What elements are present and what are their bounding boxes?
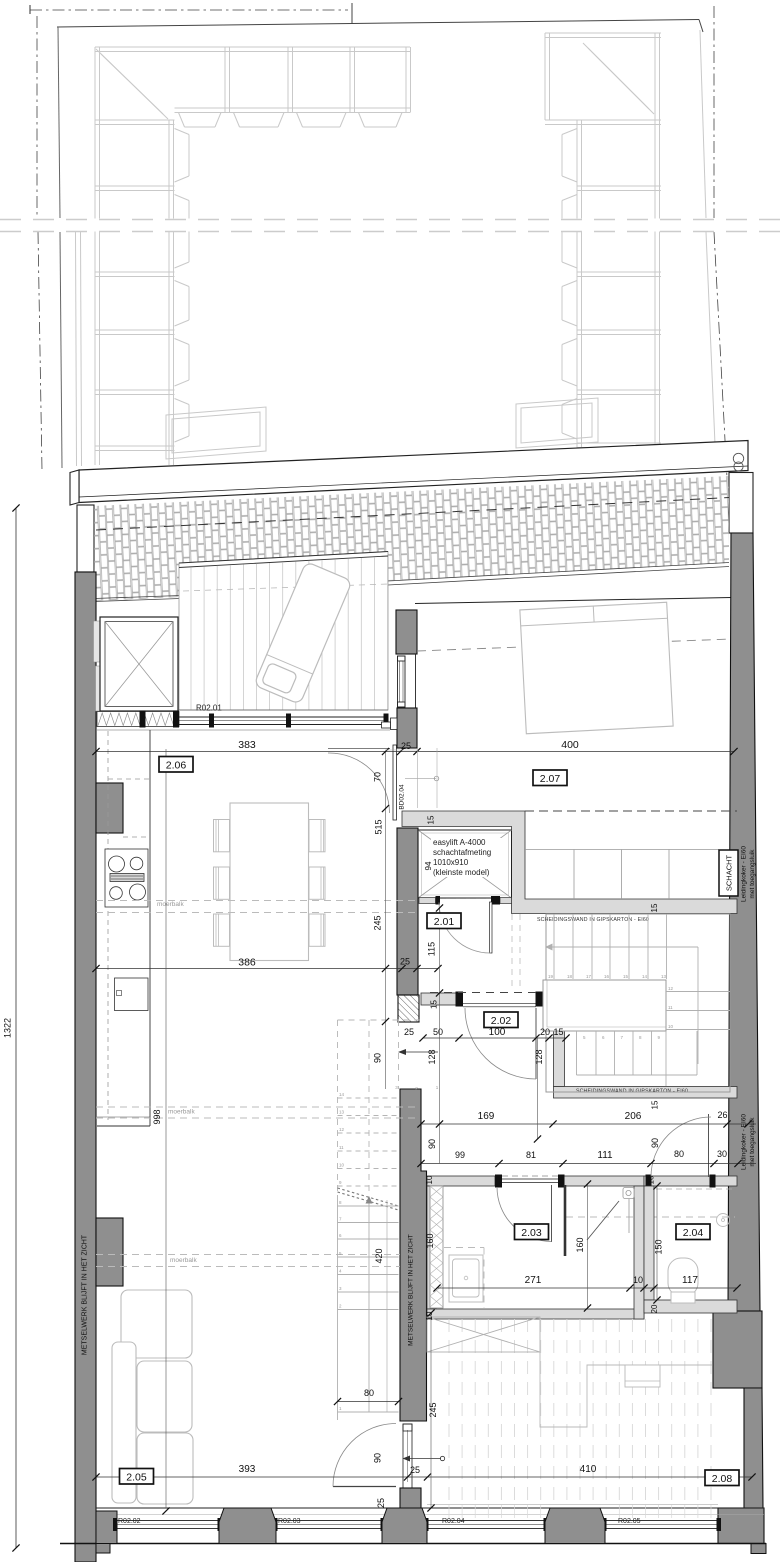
- svg-text:10: 10: [633, 1275, 643, 1285]
- svg-text:206: 206: [625, 1111, 642, 1122]
- svg-text:245: 245: [373, 915, 383, 930]
- svg-text:12: 12: [339, 1127, 345, 1132]
- svg-text:393: 393: [239, 1464, 256, 1475]
- svg-text:70: 70: [373, 772, 383, 782]
- svg-text:420: 420: [374, 1248, 384, 1263]
- svg-text:schachtafmeting: schachtafmeting: [433, 848, 491, 857]
- svg-text:19: 19: [548, 974, 554, 979]
- svg-text:10: 10: [668, 1024, 674, 1029]
- svg-text:25: 25: [400, 957, 410, 967]
- svg-text:169: 169: [478, 1111, 495, 1122]
- svg-text:14: 14: [642, 974, 648, 979]
- svg-text:25: 25: [376, 1498, 386, 1508]
- svg-text:13: 13: [339, 1110, 345, 1115]
- svg-text:410: 410: [580, 1464, 597, 1475]
- svg-text:30: 30: [717, 1149, 727, 1159]
- svg-text:METSELWERK BLIJFT IN HET ZICHT: METSELWERK BLIJFT IN HET ZICHT: [408, 1234, 415, 1346]
- svg-text:20: 20: [650, 1304, 659, 1313]
- svg-text:81: 81: [526, 1150, 536, 1160]
- svg-text:2.08: 2.08: [712, 1473, 733, 1485]
- svg-text:383: 383: [238, 739, 256, 751]
- svg-text:998: 998: [152, 1109, 162, 1124]
- svg-text:90: 90: [650, 1138, 660, 1148]
- svg-text:R02.05: R02.05: [618, 1518, 641, 1525]
- svg-text:99: 99: [455, 1150, 465, 1160]
- svg-text:12: 12: [668, 986, 674, 991]
- svg-text:2.06: 2.06: [166, 759, 187, 771]
- svg-text:25: 25: [410, 1465, 420, 1475]
- svg-text:117: 117: [682, 1275, 698, 1286]
- svg-text:25: 25: [401, 741, 411, 751]
- svg-text:SCHACHT: SCHACHT: [725, 854, 734, 891]
- svg-text:90: 90: [373, 1453, 383, 1463]
- svg-text:moerbalk: moerbalk: [170, 1257, 197, 1264]
- svg-text:150: 150: [654, 1239, 664, 1254]
- svg-text:94: 94: [424, 861, 433, 870]
- svg-text:15: 15: [553, 1027, 563, 1037]
- svg-text:515: 515: [374, 819, 384, 834]
- svg-text:160: 160: [575, 1237, 585, 1252]
- svg-text:13: 13: [661, 974, 667, 979]
- svg-text:R02.03: R02.03: [278, 1518, 301, 1525]
- svg-text:met toegangsluik: met toegangsluik: [749, 849, 756, 899]
- svg-text:15: 15: [623, 974, 629, 979]
- svg-text:386: 386: [238, 957, 256, 969]
- svg-text:245: 245: [428, 1402, 438, 1417]
- svg-text:11: 11: [339, 1145, 344, 1150]
- svg-text:BD02.04: BD02.04: [399, 784, 406, 810]
- svg-text:(kleinste model): (kleinste model): [433, 868, 490, 877]
- svg-text:128: 128: [427, 1049, 437, 1064]
- svg-text:25: 25: [404, 1027, 414, 1037]
- svg-text:10: 10: [339, 1163, 345, 1168]
- svg-text:Leidingkoker - EI60: Leidingkoker - EI60: [741, 1114, 748, 1170]
- svg-text:80: 80: [674, 1149, 684, 1159]
- svg-text:100: 100: [489, 1027, 506, 1038]
- svg-text:R02.04: R02.04: [442, 1518, 465, 1525]
- svg-text:moerbalk: moerbalk: [157, 901, 184, 908]
- svg-text:2.01: 2.01: [434, 916, 455, 928]
- svg-text:15: 15: [427, 815, 436, 824]
- svg-text:128: 128: [534, 1049, 544, 1064]
- svg-text:1010x910: 1010x910: [433, 858, 469, 867]
- svg-text:16: 16: [604, 974, 610, 979]
- svg-text:10: 10: [647, 1175, 656, 1184]
- svg-text:26: 26: [717, 1110, 727, 1120]
- svg-text:400: 400: [561, 739, 579, 751]
- svg-text:easylift A-4000: easylift A-4000: [433, 838, 486, 847]
- svg-text:15: 15: [651, 1100, 660, 1109]
- svg-text:15: 15: [430, 1000, 439, 1009]
- svg-text:50: 50: [433, 1027, 443, 1037]
- svg-text:271: 271: [525, 1275, 542, 1286]
- svg-text:80: 80: [364, 1388, 374, 1398]
- svg-text:2.02: 2.02: [491, 1015, 512, 1027]
- svg-text:20: 20: [540, 1027, 550, 1037]
- svg-text:2.03: 2.03: [521, 1227, 542, 1239]
- svg-text:15: 15: [650, 903, 659, 912]
- svg-text:90: 90: [427, 1139, 437, 1149]
- svg-text:2.05: 2.05: [126, 1471, 147, 1483]
- svg-text:2.07: 2.07: [540, 773, 561, 785]
- svg-text:moerbalk: moerbalk: [168, 1109, 195, 1116]
- svg-text:10: 10: [425, 1175, 434, 1184]
- svg-text:18: 18: [567, 974, 573, 979]
- svg-text:111: 111: [597, 1150, 613, 1161]
- svg-text:90: 90: [373, 1053, 383, 1063]
- svg-text:11: 11: [668, 1005, 673, 1010]
- svg-text:115: 115: [427, 942, 437, 956]
- svg-text:R02.02: R02.02: [118, 1518, 141, 1525]
- svg-text:10: 10: [425, 1311, 434, 1320]
- svg-text:17: 17: [586, 974, 592, 979]
- svg-text:14: 14: [339, 1092, 345, 1097]
- svg-text:METSELWERK BLIJFT IN HET ZICHT: METSELWERK BLIJFT IN HET ZICHT: [82, 1234, 89, 1355]
- svg-text:2.04: 2.04: [683, 1227, 704, 1239]
- svg-text:R02.01: R02.01: [196, 704, 222, 713]
- svg-text:Leidingkoker - EI60: Leidingkoker - EI60: [741, 846, 748, 902]
- svg-text:1322: 1322: [3, 1018, 13, 1038]
- svg-text:160: 160: [425, 1233, 435, 1248]
